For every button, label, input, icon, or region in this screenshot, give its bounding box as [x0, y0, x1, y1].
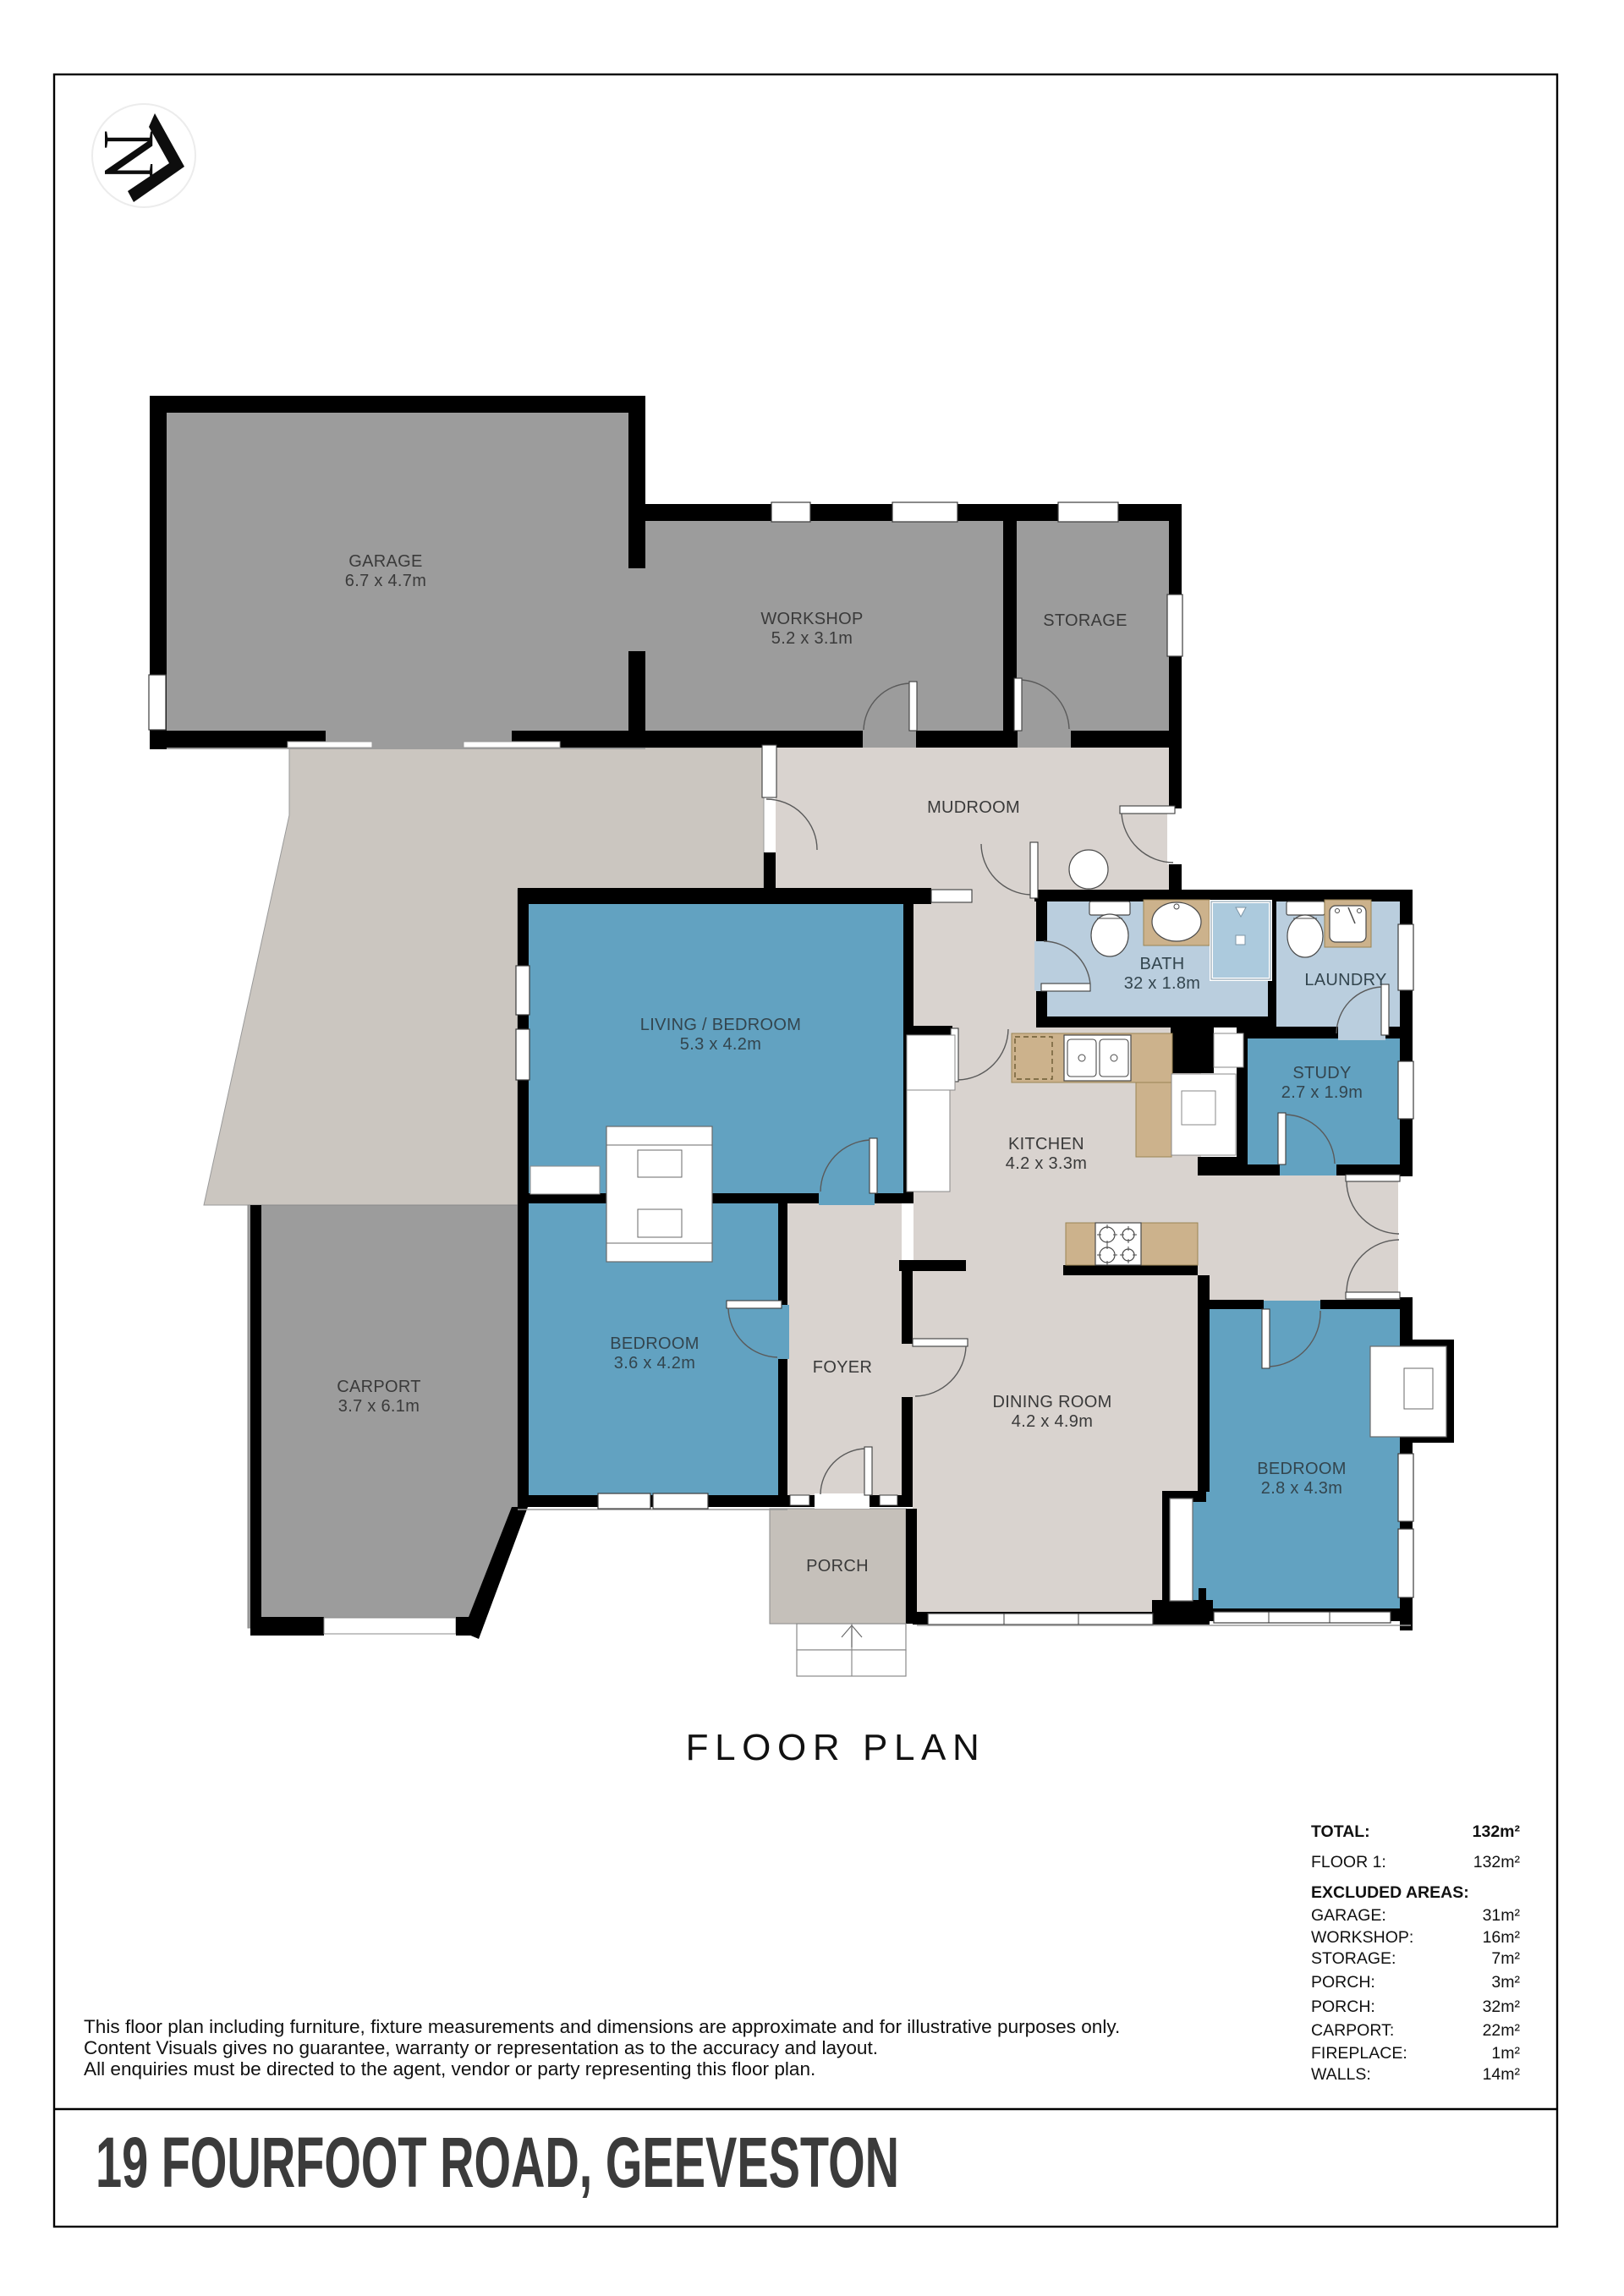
svg-text:6.7 x 4.7m: 6.7 x 4.7m — [345, 572, 426, 590]
svg-text:FLOOR 1:: FLOOR 1: — [1311, 1853, 1386, 1871]
svg-text:PORCH:: PORCH: — [1311, 1973, 1375, 1992]
svg-text:3.6 x 4.2m: 3.6 x 4.2m — [614, 1354, 695, 1373]
svg-text:14m²: 14m² — [1483, 2065, 1521, 2084]
svg-text:BEDROOM: BEDROOM — [1257, 1460, 1346, 1478]
svg-text:31m²: 31m² — [1483, 1906, 1521, 1925]
svg-text:STUDY: STUDY — [1292, 1064, 1351, 1082]
svg-text:BATH: BATH — [1139, 955, 1184, 973]
svg-text:7m²: 7m² — [1491, 1949, 1520, 1968]
svg-text:4.2 x 3.3m: 4.2 x 3.3m — [1006, 1154, 1087, 1173]
svg-text:3m²: 3m² — [1491, 1973, 1520, 1992]
svg-text:DINING ROOM: DINING ROOM — [992, 1393, 1111, 1411]
svg-text:BEDROOM: BEDROOM — [610, 1334, 699, 1353]
svg-text:MUDROOM: MUDROOM — [927, 798, 1020, 817]
svg-text:CARPORT:: CARPORT: — [1311, 2021, 1394, 2040]
svg-text:4.2 x 4.9m: 4.2 x 4.9m — [1012, 1412, 1093, 1431]
svg-text:2.7 x 1.9m: 2.7 x 1.9m — [1281, 1083, 1363, 1102]
svg-text:32 x 1.8m: 32 x 1.8m — [1124, 974, 1201, 993]
svg-text:STORAGE:: STORAGE: — [1311, 1949, 1396, 1968]
svg-text:FIREPLACE:: FIREPLACE: — [1311, 2044, 1407, 2063]
svg-text:132m²: 132m² — [1473, 1822, 1521, 1841]
svg-text:Content Visuals gives no guara: Content Visuals gives no guarantee, warr… — [84, 2037, 878, 2058]
svg-text:2.8 x 4.3m: 2.8 x 4.3m — [1261, 1479, 1342, 1498]
svg-text:EXCLUDED AREAS:: EXCLUDED AREAS: — [1311, 1883, 1469, 1902]
svg-text:WORKSHOP: WORKSHOP — [760, 610, 863, 628]
svg-text:16m²: 16m² — [1483, 1928, 1521, 1947]
svg-text:32m²: 32m² — [1483, 1997, 1521, 2016]
svg-text:TOTAL:: TOTAL: — [1311, 1822, 1370, 1841]
svg-text:GARAGE:: GARAGE: — [1311, 1906, 1386, 1925]
svg-text:LAUNDRY: LAUNDRY — [1304, 971, 1386, 989]
svg-text:5.2 x 3.1m: 5.2 x 3.1m — [771, 629, 853, 648]
svg-text:22m²: 22m² — [1483, 2021, 1521, 2040]
svg-text:PORCH: PORCH — [806, 1557, 869, 1575]
svg-text:19 FOURFOOT ROAD, GEEVESTON: 19 FOURFOOT ROAD, GEEVESTON — [96, 2123, 899, 2202]
svg-text:This floor plan including furn: This floor plan including furniture, fix… — [84, 2016, 1120, 2037]
svg-text:WORKSHOP:: WORKSHOP: — [1311, 1928, 1413, 1947]
svg-text:GARAGE: GARAGE — [348, 552, 422, 571]
svg-text:5.3 x 4.2m: 5.3 x 4.2m — [680, 1035, 761, 1054]
svg-text:FOYER: FOYER — [813, 1358, 872, 1377]
svg-text:1m²: 1m² — [1491, 2044, 1520, 2063]
svg-text:PORCH:: PORCH: — [1311, 1997, 1375, 2016]
svg-text:CARPORT: CARPORT — [337, 1378, 421, 1396]
svg-text:132m²: 132m² — [1473, 1853, 1521, 1871]
svg-text:KITCHEN: KITCHEN — [1008, 1135, 1084, 1153]
svg-text:LIVING / BEDROOM: LIVING / BEDROOM — [640, 1016, 801, 1034]
svg-text:All enquiries must be directed: All enquiries must be directed to the ag… — [84, 2058, 815, 2080]
svg-text:WALLS:: WALLS: — [1311, 2065, 1371, 2084]
svg-text:FLOOR PLAN: FLOOR PLAN — [686, 1727, 986, 1768]
svg-text:STORAGE: STORAGE — [1043, 611, 1127, 630]
svg-text:3.7 x 6.1m: 3.7 x 6.1m — [338, 1397, 420, 1416]
